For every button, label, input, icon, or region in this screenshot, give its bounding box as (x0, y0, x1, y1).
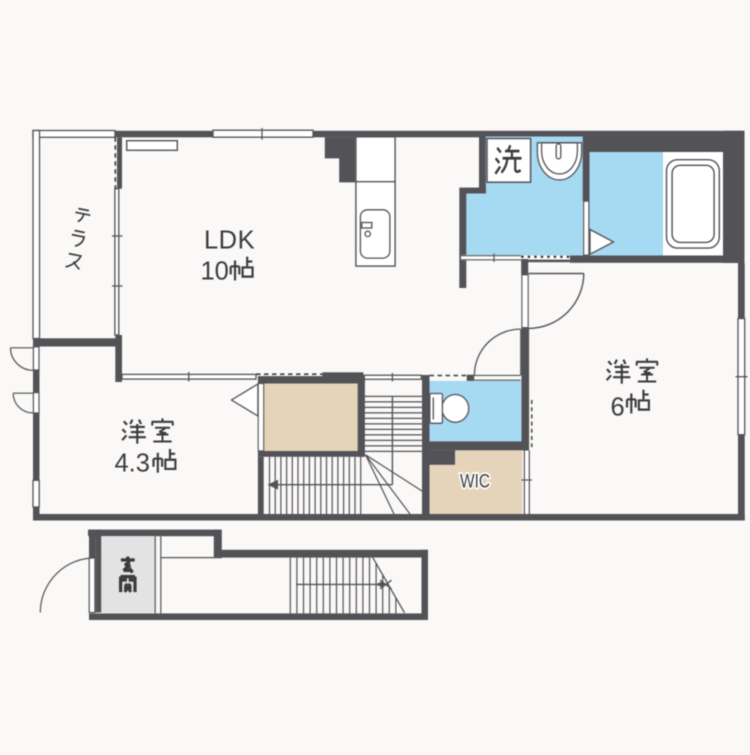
svg-text:4.3: 4.3 (115, 450, 150, 478)
svg-text:10: 10 (201, 258, 229, 286)
svg-text:LDK: LDK (204, 227, 255, 255)
svg-text:6: 6 (611, 394, 625, 422)
svg-text:WIC: WIC (460, 472, 490, 493)
